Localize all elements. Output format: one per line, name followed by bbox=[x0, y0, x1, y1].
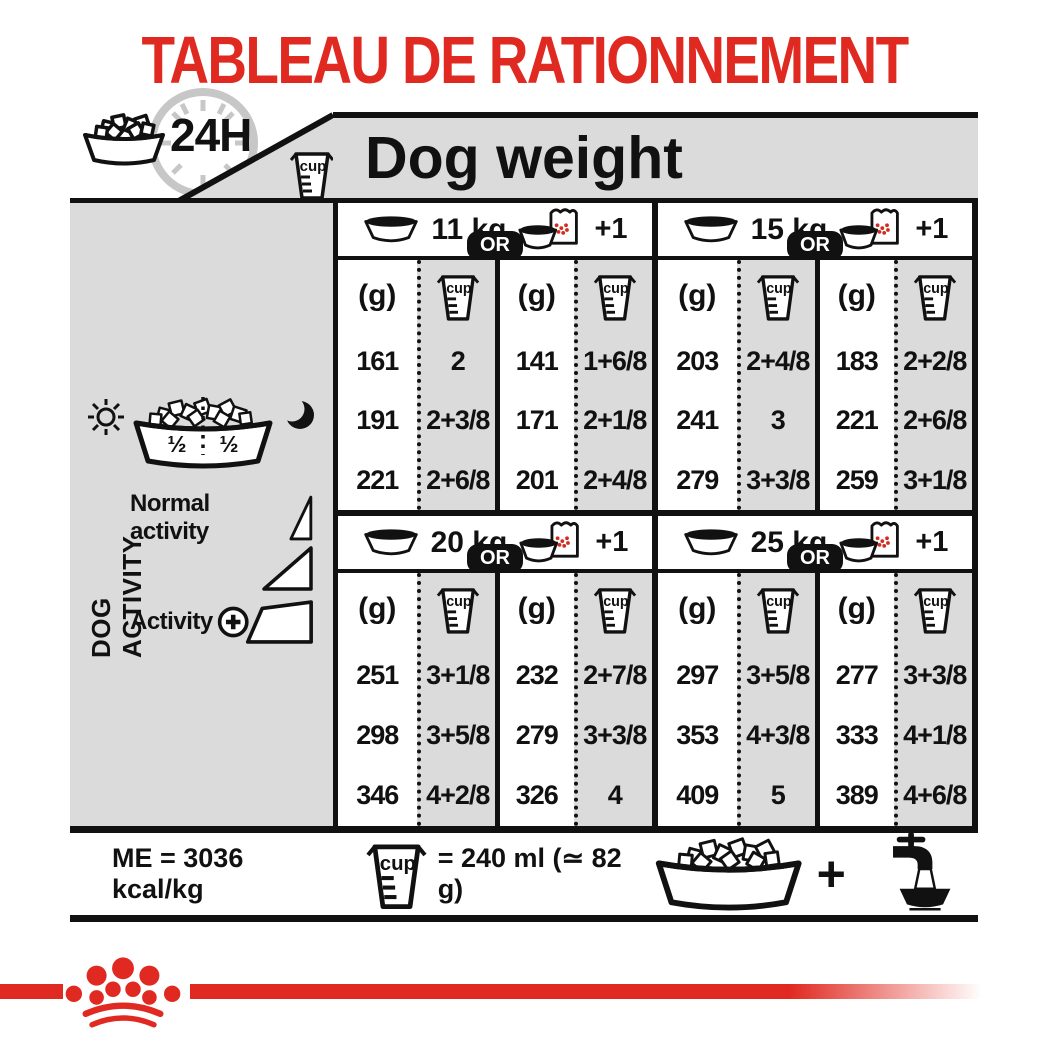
measuring-cup-icon: cup bbox=[593, 582, 637, 636]
ration-value: 2+3/8 bbox=[421, 391, 496, 450]
svg-text:½: ½ bbox=[219, 431, 238, 457]
ration-value: 2+1/8 bbox=[578, 391, 653, 450]
or-badge: OR bbox=[467, 544, 523, 573]
ration-value: 203 bbox=[658, 332, 737, 391]
grams-header: (g) bbox=[658, 573, 737, 645]
bowl-icon bbox=[362, 215, 420, 245]
bowl-plus-bag-icon bbox=[517, 205, 583, 255]
medium-activity-row bbox=[130, 545, 314, 592]
cup-header: cup bbox=[741, 573, 816, 645]
grams-column: (g) 161 191 221 bbox=[338, 260, 417, 510]
measuring-cup-icon: cup bbox=[756, 582, 800, 636]
activity-level-2-icon bbox=[262, 545, 314, 592]
measuring-cup-icon: cup bbox=[913, 582, 957, 636]
measuring-cup-icon: cup bbox=[436, 269, 480, 323]
ration-value: 4+1/8 bbox=[898, 705, 973, 765]
table-row-group-top: 11 kg +1 OR (g) 161 191 221 bbox=[338, 198, 972, 510]
weight-block-25kg: 25 kg +1 OR (g) 297 353 409 bbox=[652, 516, 972, 826]
weight-header-20kg: 20 kg +1 OR bbox=[338, 516, 652, 573]
grams-column: (g) 183 221 259 bbox=[815, 260, 894, 510]
weight-block-20kg: 20 kg +1 OR (g) 251 298 346 bbox=[338, 516, 652, 826]
water-tap-icon bbox=[854, 833, 968, 915]
grams-header: (g) bbox=[658, 260, 737, 332]
ration-value: 4+6/8 bbox=[898, 766, 973, 826]
svg-text:cup: cup bbox=[379, 853, 415, 875]
dog-weight-header: Dog weight bbox=[333, 112, 978, 198]
ration-value: 2 bbox=[421, 332, 496, 391]
or-badge: OR bbox=[787, 544, 843, 573]
high-activity-row: Activity bbox=[130, 597, 314, 647]
ration-value: 221 bbox=[338, 451, 417, 510]
measuring-cup-icon: cup bbox=[365, 836, 428, 912]
measuring-cup-icon: cup bbox=[756, 269, 800, 323]
weight-header-15kg: 15 kg +1 OR bbox=[658, 203, 972, 260]
ration-value: 2+4/8 bbox=[741, 332, 816, 391]
grams-header: (g) bbox=[500, 260, 574, 332]
ration-value: 5 bbox=[741, 766, 816, 826]
ration-value: 2+6/8 bbox=[421, 451, 496, 510]
ration-value: 279 bbox=[658, 451, 737, 510]
ration-value: 251 bbox=[338, 645, 417, 705]
ration-value: 259 bbox=[820, 451, 894, 510]
svg-text:cup: cup bbox=[603, 594, 629, 610]
weight-header-25kg: 25 kg +1 OR bbox=[658, 516, 972, 573]
ration-table: 11 kg +1 OR (g) 161 191 221 bbox=[333, 198, 978, 826]
activity-label: Activity bbox=[130, 608, 213, 636]
ration-value: 4 bbox=[578, 766, 653, 826]
bowl-icon bbox=[362, 528, 420, 558]
sun-icon bbox=[82, 391, 130, 441]
ration-value: 241 bbox=[658, 391, 737, 450]
grams-column: (g) 141 171 201 bbox=[495, 260, 574, 510]
ration-value: 191 bbox=[338, 391, 417, 450]
cup-column: cup 1+6/8 2+1/8 2+4/8 bbox=[574, 260, 653, 510]
weight-body-20kg: (g) 251 298 346 bbox=[338, 573, 652, 826]
svg-text:cup: cup bbox=[603, 281, 629, 297]
activity-level-3-icon bbox=[245, 597, 314, 647]
grams-column: (g) 277 333 389 bbox=[815, 573, 894, 826]
brand-rule-left bbox=[0, 984, 63, 999]
weight-body-11kg: (g) 161 191 221 bbox=[338, 260, 652, 510]
bowl-icon bbox=[682, 215, 740, 245]
svg-text:cup: cup bbox=[923, 594, 949, 610]
cup-column: cup 3+1/8 3+5/8 4+2/8 bbox=[417, 573, 496, 826]
plus-sign: + bbox=[817, 845, 846, 903]
weight-block-11kg: 11 kg +1 OR (g) 161 191 221 bbox=[338, 203, 652, 510]
cup-column: cup 2+4/8 3 3+3/8 bbox=[737, 260, 816, 510]
ration-value: 3+1/8 bbox=[421, 645, 496, 705]
cup-header: cup bbox=[578, 573, 653, 645]
grams-column: (g) 203 241 279 bbox=[658, 260, 737, 510]
bowl-icon bbox=[682, 528, 740, 558]
svg-text:½: ½ bbox=[167, 431, 186, 457]
svg-text:cup: cup bbox=[766, 594, 792, 610]
plus-one-label: +1 bbox=[595, 526, 628, 559]
ration-value: 3+3/8 bbox=[898, 645, 973, 705]
dog-activity-panel: ½ ½ DOG ACTIVITY Normal activity Activit… bbox=[70, 198, 333, 826]
cup-header: cup bbox=[898, 260, 973, 332]
ration-value: 326 bbox=[500, 766, 574, 826]
cup-header: cup bbox=[421, 573, 496, 645]
ration-value: 346 bbox=[338, 766, 417, 826]
grams-column: (g) 297 353 409 bbox=[658, 573, 737, 826]
energy-info-row: ME = 3036 kcal/kg cup = 240 ml (≃ 82 g) bbox=[70, 826, 978, 922]
ration-value: 232 bbox=[500, 645, 574, 705]
weight-block-15kg: 15 kg +1 OR (g) 203 241 279 bbox=[652, 203, 972, 510]
rationing-table-sheet: TABLEAU DE RATIONNEMENT 24H bbox=[0, 0, 1049, 1049]
normal-activity-row: Normal activity bbox=[130, 490, 314, 546]
ration-value: 297 bbox=[658, 645, 737, 705]
weight-body-15kg: (g) 203 241 279 bbox=[658, 260, 972, 510]
cup-header: cup bbox=[741, 260, 816, 332]
cup-header: cup bbox=[578, 260, 653, 332]
food-bowl-icon bbox=[651, 834, 806, 918]
ration-value: 201 bbox=[500, 451, 574, 510]
dog-weight-title: Dog weight bbox=[365, 124, 683, 192]
measuring-cup-icon: cup bbox=[289, 146, 335, 202]
ration-value: 3 bbox=[741, 391, 816, 450]
svg-text:cup: cup bbox=[446, 281, 472, 297]
cup-column: cup 3+5/8 4+3/8 5 bbox=[737, 573, 816, 826]
ration-value: 3+1/8 bbox=[898, 451, 973, 510]
svg-text:cup: cup bbox=[923, 281, 949, 297]
plus-one-label: +1 bbox=[915, 213, 948, 246]
or-badge: OR bbox=[787, 231, 843, 260]
cup-column: cup 2+7/8 3+3/8 4 bbox=[574, 573, 653, 826]
measuring-cup-icon: cup bbox=[913, 269, 957, 323]
cup-column: cup 2 2+3/8 2+6/8 bbox=[417, 260, 496, 510]
ration-value: 183 bbox=[820, 332, 894, 391]
plus-circle-icon bbox=[216, 603, 250, 641]
ration-value: 277 bbox=[820, 645, 894, 705]
svg-text:cup: cup bbox=[766, 281, 792, 297]
measuring-cup-icon: cup bbox=[593, 269, 637, 323]
weight-body-25kg: (g) 297 353 409 bbox=[658, 573, 972, 826]
ration-value: 2+4/8 bbox=[578, 451, 653, 510]
brand-rule-right bbox=[190, 984, 982, 999]
or-badge: OR bbox=[467, 231, 523, 260]
grams-header: (g) bbox=[820, 260, 894, 332]
svg-text:cup: cup bbox=[300, 158, 327, 175]
bowl-plus-bag-icon bbox=[838, 205, 904, 255]
ration-value: 3+5/8 bbox=[421, 705, 496, 765]
ration-value: 2+7/8 bbox=[578, 645, 653, 705]
activity-level-1-icon bbox=[289, 493, 314, 543]
ration-value: 1+6/8 bbox=[578, 332, 653, 391]
metabolizable-energy-label: ME = 3036 kcal/kg bbox=[112, 843, 339, 905]
ration-value: 161 bbox=[338, 332, 417, 391]
normal-activity-label: Normal activity bbox=[130, 490, 286, 546]
cup-column: cup 3+3/8 4+1/8 4+6/8 bbox=[894, 573, 973, 826]
grams-header: (g) bbox=[338, 260, 417, 332]
plus-one-label: +1 bbox=[915, 526, 948, 559]
ration-value: 333 bbox=[820, 705, 894, 765]
bowl-plus-bag-icon bbox=[838, 518, 904, 568]
table-row-group-bottom: 20 kg +1 OR (g) 251 298 346 bbox=[338, 510, 972, 826]
ration-value: 221 bbox=[820, 391, 894, 450]
ration-value: 3+3/8 bbox=[578, 705, 653, 765]
ration-value: 409 bbox=[658, 766, 737, 826]
weight-header-11kg: 11 kg +1 OR bbox=[338, 203, 652, 260]
ration-value: 389 bbox=[820, 766, 894, 826]
ration-value: 2+6/8 bbox=[898, 391, 973, 450]
ration-value: 353 bbox=[658, 705, 737, 765]
ration-value: 171 bbox=[500, 391, 574, 450]
ration-value: 4+3/8 bbox=[741, 705, 816, 765]
grams-column: (g) 251 298 346 bbox=[338, 573, 417, 826]
ration-value: 141 bbox=[500, 332, 574, 391]
plus-one-label: +1 bbox=[594, 213, 627, 246]
ration-value: 279 bbox=[500, 705, 574, 765]
grams-header: (g) bbox=[338, 573, 417, 645]
ration-value: 3+5/8 bbox=[741, 645, 816, 705]
cup-equivalence-label: = 240 ml (≃ 82 g) bbox=[438, 843, 652, 905]
measuring-cup-icon: cup bbox=[436, 582, 480, 636]
ration-value: 3+3/8 bbox=[741, 451, 816, 510]
bowl-plus-bag-icon bbox=[518, 518, 584, 568]
grams-column: (g) 232 279 326 bbox=[495, 573, 574, 826]
grams-header: (g) bbox=[820, 573, 894, 645]
ration-value: 298 bbox=[338, 705, 417, 765]
royal-canin-crown-logo bbox=[62, 950, 184, 1034]
svg-text:cup: cup bbox=[446, 594, 472, 610]
ration-value: 4+2/8 bbox=[421, 766, 496, 826]
cup-header: cup bbox=[421, 260, 496, 332]
cup-column: cup 2+2/8 2+6/8 3+1/8 bbox=[894, 260, 973, 510]
ration-value: 2+2/8 bbox=[898, 332, 973, 391]
moon-icon bbox=[280, 395, 318, 435]
cup-header: cup bbox=[898, 573, 973, 645]
half-portions-bowl-icon: ½ ½ bbox=[128, 397, 278, 475]
grams-header: (g) bbox=[500, 573, 574, 645]
